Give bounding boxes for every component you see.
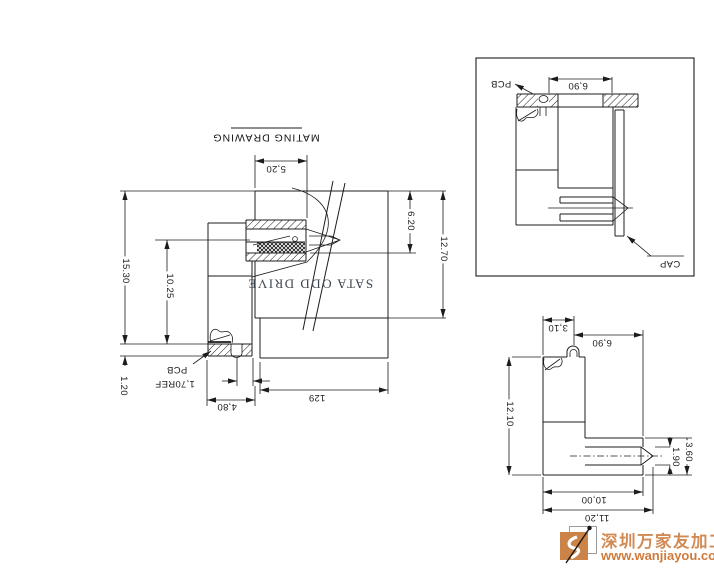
dim-12-70: 12.70: [438, 234, 448, 263]
detail-dim-6-90: 6,90: [568, 80, 588, 90]
dim-4-80: 4,80: [217, 401, 237, 411]
drawing-title: MATING DRAWING: [212, 132, 319, 143]
product-label: SATA ODD DRIVE: [247, 278, 373, 291]
side-dim-3-10: 3,10: [548, 322, 568, 332]
watermark-url: www.wanjiayou.com: [601, 548, 714, 563]
dim-6-20: 6.20: [405, 209, 415, 233]
side-dim-1-90: 1.90: [670, 445, 680, 469]
cap-label: CAP: [660, 258, 680, 268]
side-dim-3-60: 3.60: [683, 440, 693, 464]
detail-pcb-label: PCB: [491, 78, 511, 88]
dim-10-25: 10.25: [164, 271, 174, 300]
side-dim-12-10: 12.10: [504, 399, 514, 428]
side-dim-11-20: 11,20: [585, 512, 610, 522]
engineering-drawing: MATING DRAWING SATA ODD DRIVE 5,20 15.30…: [0, 0, 714, 571]
side-dim-10-00: 10,00: [581, 494, 606, 504]
dim-5-20: 5,20: [266, 163, 286, 173]
dim-1-20: 1.20: [118, 374, 128, 398]
pcb-label: PCB: [167, 364, 187, 374]
dim-1-70ref: 1,70REF: [155, 378, 195, 388]
dim-15-30: 15.30: [120, 256, 130, 285]
dim-129: 129: [309, 392, 326, 402]
side-dim-6-90: 6,90: [592, 337, 612, 347]
watermark-logo: [560, 526, 597, 563]
